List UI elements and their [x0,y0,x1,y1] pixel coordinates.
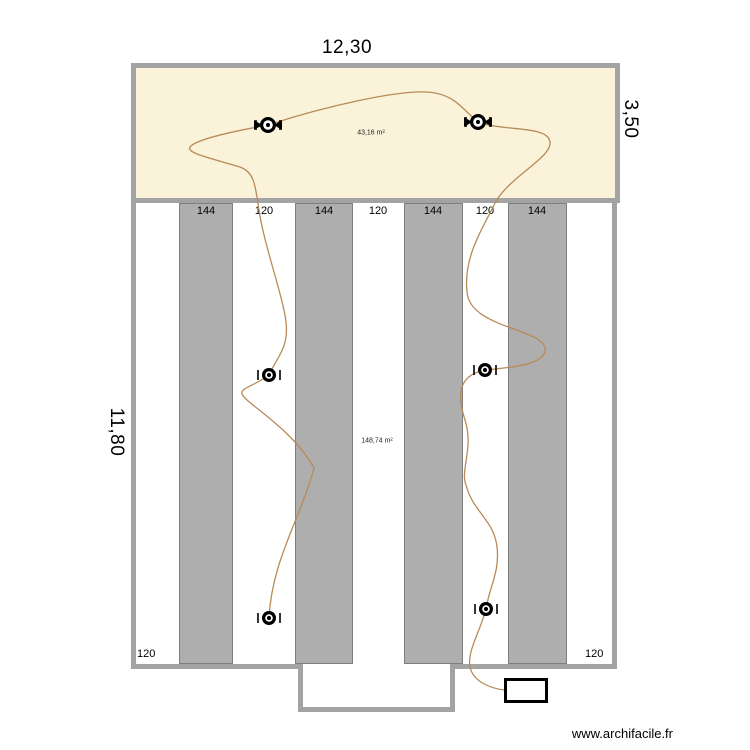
floor-stripe[interactable] [404,203,463,664]
band-measurement: 144 [528,205,546,217]
band-measurement: 144 [315,205,333,217]
band-measurement: 120 [369,205,387,217]
dimension-left-height: 11,80 [105,408,127,457]
band-measurement: 144 [197,205,215,217]
band-measurement: 120 [255,205,273,217]
floor-stripe[interactable] [508,203,567,664]
floor-stripe[interactable] [179,203,233,664]
floor-stripe[interactable] [295,203,353,664]
floorplan-canvas: 144 120 144 120 144 120 144 120 120 43,1… [0,0,750,750]
junction-box[interactable] [504,678,548,703]
dimension-top-width: 12,30 [322,37,372,59]
band-measurement-bottom-right: 120 [585,648,603,660]
band-measurement: 120 [476,205,494,217]
band-measurement: 144 [424,205,442,217]
room-bottom-area-label: 148,74 m² [361,438,393,445]
dimension-right-height: 3,50 [619,100,641,139]
watermark-url: www.archifacile.fr [572,726,673,741]
bump-out-extension[interactable] [298,664,455,712]
room-top-area-label: 43,16 m² [357,130,385,137]
band-measurement-bottom-left: 120 [137,648,155,660]
